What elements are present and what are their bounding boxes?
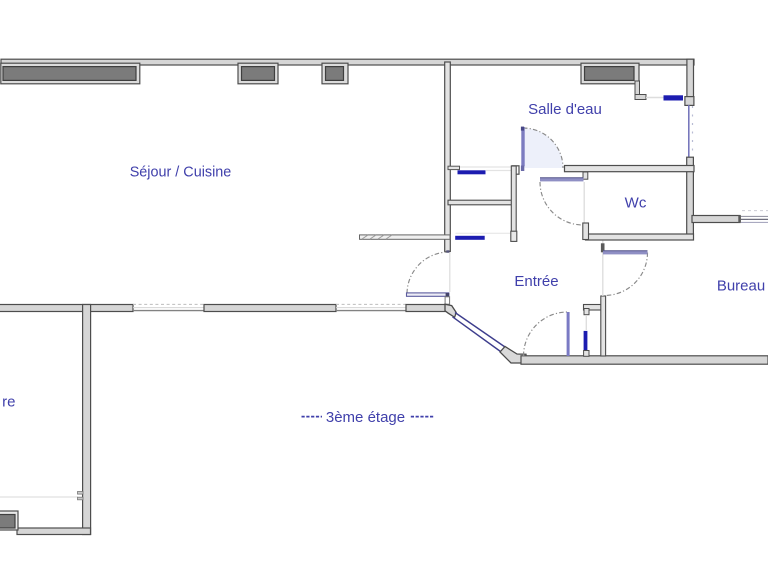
svg-text:Wc: Wc (625, 195, 647, 212)
svg-text:re: re (2, 394, 15, 411)
svg-text:3ème étage: 3ème étage (326, 409, 405, 426)
svg-text:Salle d'eau: Salle d'eau (528, 101, 602, 118)
svg-text:Séjour / Cuisine: Séjour / Cuisine (130, 165, 232, 181)
svg-text:Bureau: Bureau (717, 278, 765, 295)
svg-text:Entrée: Entrée (514, 273, 558, 290)
